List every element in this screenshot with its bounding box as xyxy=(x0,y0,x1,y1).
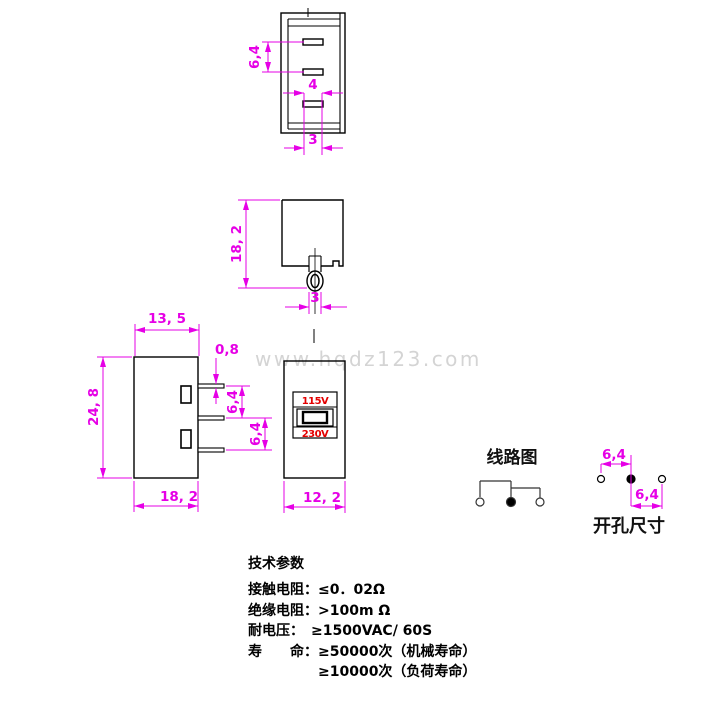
dim-side-height: 18, 2 xyxy=(229,225,245,263)
side-view-dimensions xyxy=(238,200,347,314)
top-view-dimensions xyxy=(262,42,343,155)
voltage-label-230: 230V xyxy=(302,429,329,440)
front-view-dimensions xyxy=(97,324,272,512)
specs-title: 技术参数 xyxy=(248,553,476,573)
switch-actuator xyxy=(303,412,327,423)
hole-dimensions-title: 开孔尺寸 xyxy=(593,515,665,536)
dim-top-pin-pitch: 3 xyxy=(308,132,317,148)
front-slot xyxy=(181,430,191,448)
technical-specs: 技术参数 接触电阻：≤0．02Ω 绝缘电阻：>100m Ω 耐电压： ≥1500… xyxy=(248,553,476,683)
terminal-slot xyxy=(303,69,323,75)
dim-front-top-width: 13, 5 xyxy=(148,311,186,327)
spec-row-contact-resistance: 接触电阻：≤0．02Ω xyxy=(248,580,476,601)
terminal-slot xyxy=(303,39,323,45)
front-slot xyxy=(181,386,191,403)
dim-top-slot-length: 4 xyxy=(308,77,317,93)
circuit-diagram-title: 线路图 xyxy=(487,447,538,467)
dim-hole-spacing-1: 6,4 xyxy=(602,447,626,463)
hole-open xyxy=(598,476,605,483)
pin xyxy=(198,416,224,420)
spec-row-insulation-resistance: 绝缘电阻：>100m Ω xyxy=(248,601,476,622)
dim-front-bottom-width: 18, 2 xyxy=(160,489,198,505)
front-view-body xyxy=(134,357,198,478)
dim-pin-spacing-1: 6,4 xyxy=(225,390,241,414)
hole-open xyxy=(659,476,666,483)
dim-panel-width: 12, 2 xyxy=(303,490,341,506)
dim-side-terminal-width: 3 xyxy=(310,290,319,306)
dim-front-height: 24, 8 xyxy=(86,388,102,426)
circuit-diagram xyxy=(476,481,544,507)
pin xyxy=(198,384,224,388)
engineering-drawing-page: www.hqdz123.com xyxy=(0,0,711,715)
contact-common xyxy=(507,498,516,507)
spec-row-mechanical-life: 寿 命：≥50000次（机械寿命） xyxy=(248,642,476,663)
spec-row-withstand-voltage: 耐电压： ≥1500VAC/ 60S xyxy=(248,621,476,642)
terminal-slot xyxy=(303,101,323,107)
dim-pin-spacing-2: 6,4 xyxy=(248,422,264,446)
contact-open xyxy=(536,498,544,506)
dim-pin-thickness: 0,8 xyxy=(215,342,239,358)
top-view xyxy=(281,8,345,133)
front-view xyxy=(134,357,224,478)
contact-open xyxy=(476,498,484,506)
pin xyxy=(198,448,224,452)
dim-hole-spacing-2: 6,4 xyxy=(635,487,659,503)
voltage-label-115: 115V xyxy=(302,396,329,407)
dim-top-slot-spacing: 6,4 xyxy=(247,45,263,69)
spec-row-load-life: ≥10000次（负荷寿命） xyxy=(248,662,476,683)
